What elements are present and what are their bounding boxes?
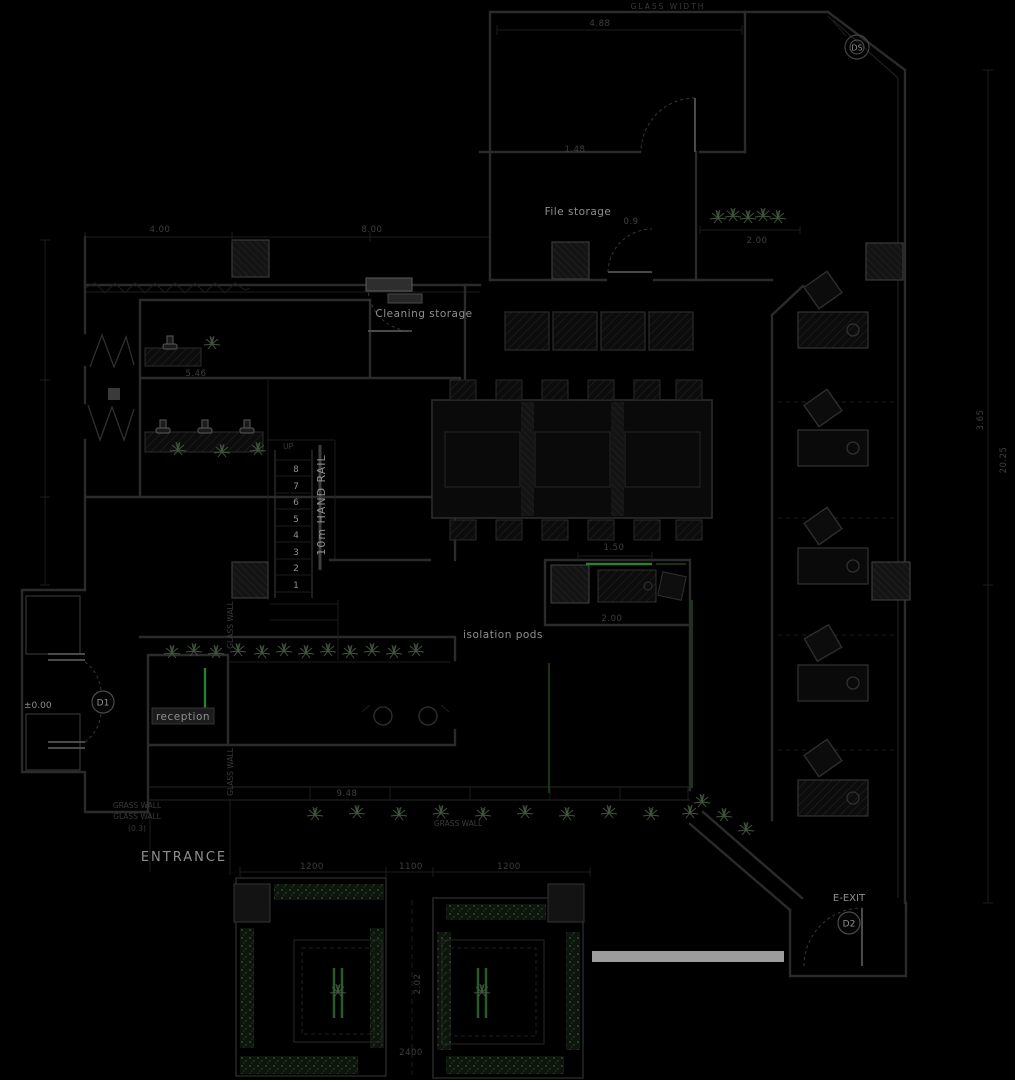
room-label-file-storage: File storage xyxy=(545,206,612,218)
level-mark: ±0.00 xyxy=(24,701,52,711)
door-tag-d1-label: D1 xyxy=(97,699,110,709)
stair-number: 3 xyxy=(293,548,299,558)
dim-court-bottom: 2400 xyxy=(399,1048,423,1058)
floor-plan-canvas: D1 D2 DS UP 8 7 6 5 4 3 2 1 xyxy=(0,0,1015,1080)
dim-left-b: 8.00 xyxy=(362,225,383,235)
dim-pods-bottom: 2.00 xyxy=(602,614,623,624)
dim-pods-top: 1.50 xyxy=(604,543,625,553)
stair-number: 8 xyxy=(293,465,299,475)
stair-number: 5 xyxy=(293,515,299,525)
dim-top-inner: 1.48 xyxy=(565,145,586,155)
room-label-entrance: ENTRANCE xyxy=(141,850,227,865)
stair-number: 1 xyxy=(293,581,299,591)
room-label-cleaning-storage: Cleaning storage xyxy=(375,308,472,320)
dim-left-a: 4.00 xyxy=(150,225,171,235)
stair-number: 6 xyxy=(293,498,299,508)
dim-file-door: 0.9 xyxy=(623,217,638,227)
room-label-isolation-pods: isolation pods xyxy=(463,629,543,641)
ds-symbol-label: DS xyxy=(851,44,862,53)
conference-table xyxy=(432,380,712,540)
dim-top-span: 4.88 xyxy=(590,19,611,29)
dim-court-a: 1200 xyxy=(300,862,324,872)
dim-plant-row: 2.00 xyxy=(747,236,768,246)
dim-right-upper: 3.65 xyxy=(976,410,986,431)
door-tag-d2-label: D2 xyxy=(843,920,856,930)
dim-sink-counter: 5.46 xyxy=(186,369,207,379)
glass-wall-side-lower: GLASS WALL xyxy=(226,747,235,796)
wall-thickness-label: (0.3) xyxy=(128,824,146,833)
stair-number: 4 xyxy=(293,531,299,541)
exit-ramp xyxy=(592,951,784,962)
dim-walkway: 9.48 xyxy=(337,789,358,799)
dim-court-b: 1200 xyxy=(497,862,521,872)
stairs-up-label: UP xyxy=(283,442,293,451)
stair-number: 2 xyxy=(293,564,299,574)
room-label-reception: reception xyxy=(156,711,210,723)
grass-wall-right-label: GRASS WALL xyxy=(434,819,483,828)
door-tag-d1: D1 xyxy=(92,691,114,713)
hand-rail-label: 10m HAND RAIL xyxy=(315,454,328,555)
dim-court-mid: 1100 xyxy=(399,862,423,872)
dim-right-lower: 20.25 xyxy=(999,447,1009,474)
door-tag-d2: D2 xyxy=(838,912,860,934)
room-label-e-exit: E-EXIT xyxy=(833,893,866,904)
glass-wall-side-upper: GLASS WALL xyxy=(226,600,235,649)
glass-width-label: GLASS WIDTH xyxy=(631,2,706,11)
dim-court-gap: 2.02 xyxy=(413,974,423,995)
glass-wall-label: GLASS WALL xyxy=(113,812,162,821)
grass-wall-label: GRASS WALL xyxy=(113,801,162,810)
stair-number: 7 xyxy=(293,482,299,492)
